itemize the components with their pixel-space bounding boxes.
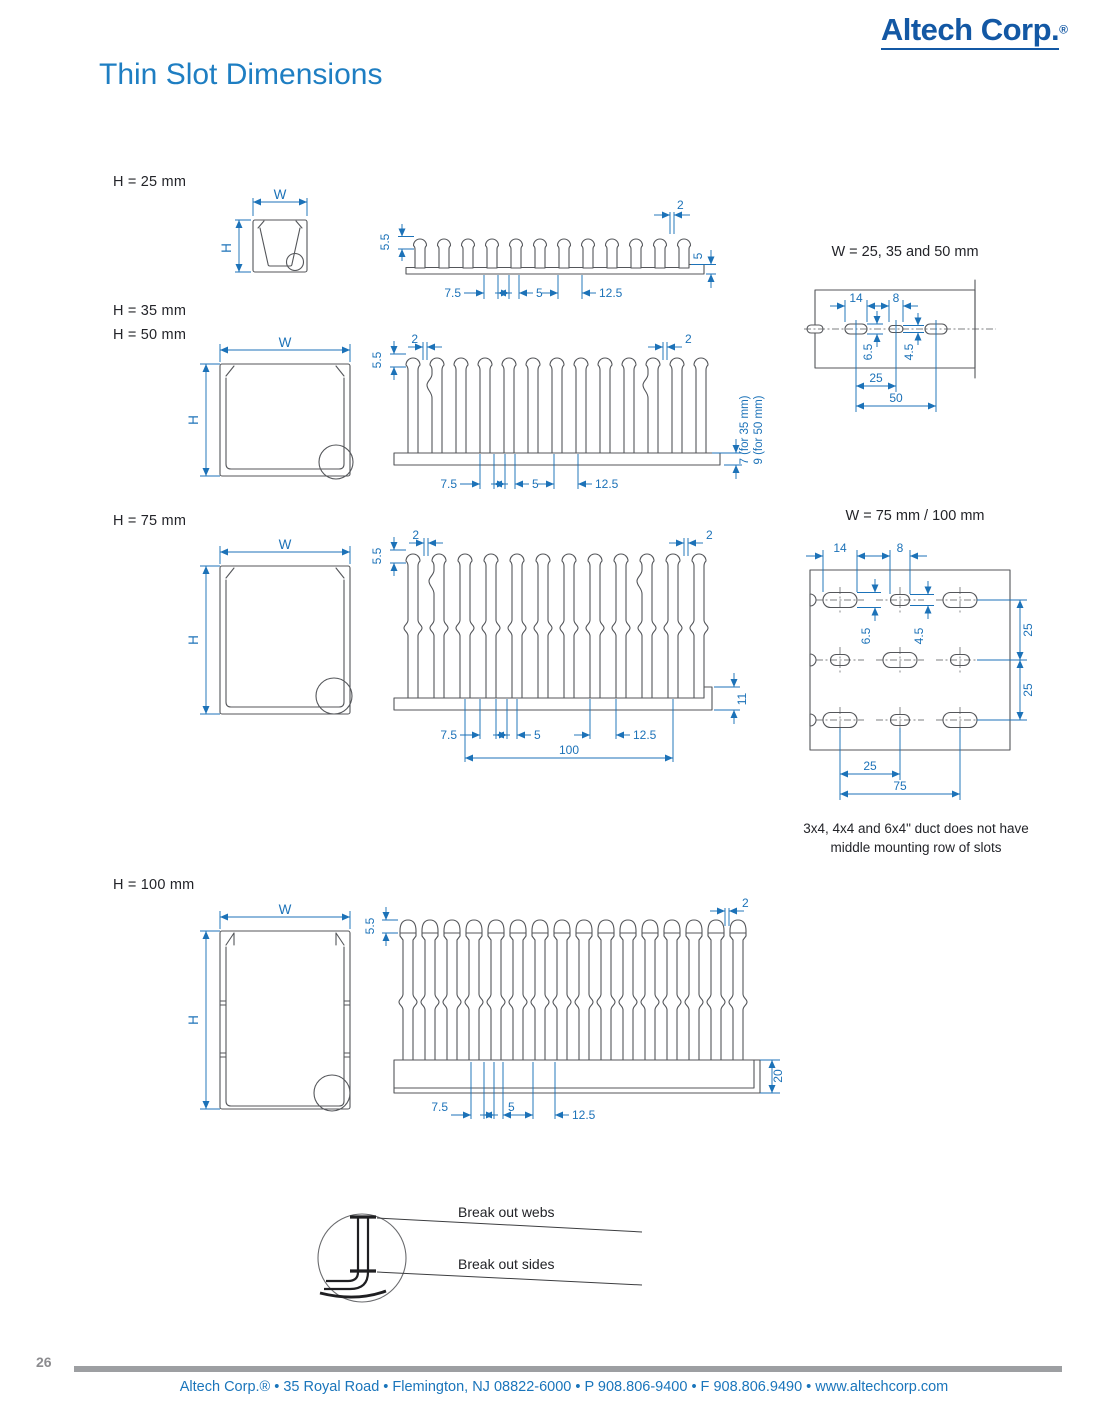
dim-wall: 5	[691, 252, 705, 259]
dim-slot: 5	[508, 1100, 515, 1114]
note-line-1: 3x4, 4x4 and 6x4" duct does not have	[780, 820, 1052, 839]
dim-slot-large: 14	[833, 541, 847, 555]
dim-slot-top: 2	[677, 198, 684, 212]
dim-span-100: 100	[559, 743, 579, 757]
dim-head-height: 5.5	[370, 351, 384, 368]
registered-mark: ®	[1059, 23, 1068, 37]
h35-50-slot-profile-drawing: 5.5 2 2 7 (for 35 mm) 9 (for 50 mm) 7.5 …	[368, 334, 768, 502]
dim-slot-large-h: 6.5	[861, 343, 875, 360]
breakout-sides-label: Break out sides	[458, 1256, 555, 1272]
section-heading-h50: H = 50 mm	[113, 327, 186, 343]
dim-col-25: 25	[863, 759, 877, 773]
dim-foot: 11	[735, 692, 749, 705]
h100-w-label: W	[279, 902, 292, 917]
dim-slot-small: 8	[893, 291, 900, 305]
h100-comb-outline	[394, 920, 760, 1093]
section-heading-h25: H = 25 mm	[113, 174, 186, 190]
h100-cross-section-drawing: W H	[190, 903, 360, 1123]
dim-base-50: 9 (for 50 mm)	[753, 395, 765, 464]
pattern-large-note: 3x4, 4x4 and 6x4" duct does not have mid…	[780, 820, 1052, 858]
h75-cross-section-drawing: W H	[190, 538, 360, 728]
pattern-large-title: W = 75 mm / 100 mm	[790, 508, 1040, 524]
catalog-page: Altech Corp.® Thin Slot Dimensions H = 2…	[0, 0, 1100, 1422]
h75-w-label: W	[279, 537, 292, 552]
h25-h-label: H	[219, 243, 234, 253]
dim-head-height: 5.5	[378, 233, 392, 250]
mounting-pattern-small-drawing: 14 8 6.5 4.5 25 50	[800, 276, 1000, 426]
mounting-pattern-large-drawing: 14 8 6.5 4.5 25 25 25 75	[795, 534, 1040, 806]
dim-span-75: 75	[893, 779, 907, 793]
h35-50-w-label: W	[279, 335, 292, 350]
dim-slot-small: 8	[897, 541, 904, 555]
page-number: 26	[36, 1354, 52, 1370]
h25-slot-profile-drawing: 5.5 2 5 7.5 5 12.5	[372, 196, 722, 308]
dim-web: 7.5	[431, 1100, 448, 1114]
dim-slot-large-h: 6.5	[859, 627, 873, 644]
dim-slot-top-left: 2	[411, 332, 418, 346]
dim-pitch: 12.5	[595, 477, 619, 491]
h25-w-label: W	[274, 187, 287, 202]
altech-logo: Altech Corp.®	[881, 12, 1068, 48]
note-line-2: middle mounting row of slots	[780, 839, 1052, 858]
section-heading-h75: H = 75 mm	[113, 513, 186, 529]
h75-comb-outline	[394, 554, 712, 710]
dim-span-50: 50	[889, 391, 903, 405]
h100-duct-outline	[220, 931, 350, 1111]
dim-slot-small-h: 4.5	[912, 627, 926, 644]
dim-base-35: 7 (for 35 mm)	[739, 395, 751, 464]
dim-web: 7.5	[440, 728, 457, 742]
h75-duct-outline	[220, 566, 352, 714]
pattern-small-title: W = 25, 35 and 50 mm	[790, 244, 1020, 260]
h35-50-h-label: H	[186, 415, 201, 425]
dim-pitch: 12.5	[572, 1108, 596, 1122]
dim-slot-top-right: 2	[685, 332, 692, 346]
dim-slot-large: 14	[849, 291, 863, 305]
section-heading-h100: H = 100 mm	[113, 877, 194, 893]
dim-slot-top-left: 2	[412, 528, 419, 542]
dim-pitch: 12.5	[633, 728, 657, 742]
footer-divider-bar	[74, 1366, 1062, 1372]
h75-h-label: H	[186, 635, 201, 645]
h100-slot-profile-drawing: 5.5 2 20 7.5 5 12.5	[368, 900, 788, 1135]
dim-row-25-b: 25	[1021, 683, 1035, 697]
dim-base-20: 20	[771, 1069, 785, 1083]
h25-duct-outline	[253, 220, 307, 272]
dim-slot: 5	[534, 728, 541, 742]
h25-comb-outline	[406, 239, 704, 274]
logo-text: Altech Corp.	[881, 12, 1059, 50]
h35-50-comb-outline	[394, 358, 720, 465]
dim-row-25-a: 25	[1021, 623, 1035, 637]
dim-web: 7.5	[440, 477, 457, 491]
dim-slot: 5	[532, 477, 539, 491]
section-heading-h35: H = 35 mm	[113, 303, 186, 319]
dim-spacing-25: 25	[869, 371, 883, 385]
dim-slot: 5	[536, 286, 543, 300]
h100-h-label: H	[186, 1015, 201, 1025]
dim-slot-small-h: 4.5	[902, 343, 916, 360]
h35-50-duct-outline	[220, 364, 353, 479]
h75-slot-profile-drawing: 5.5 2 2 11 7.5 5 12.5 100	[368, 530, 778, 770]
h75-profile-dims: 5.5 2 2 11 7.5 5 12.5 100	[370, 528, 749, 762]
breakout-leader-lines	[377, 1218, 642, 1285]
dim-web: 7.5	[444, 286, 461, 300]
breakout-detail-circle	[318, 1214, 406, 1302]
footer-contact-line: Altech Corp.® • 35 Royal Road • Flemingt…	[0, 1379, 1100, 1395]
h35-50-cross-section-drawing: W H	[190, 336, 360, 491]
breakout-webs-label: Break out webs	[458, 1204, 555, 1220]
dim-pitch: 12.5	[599, 286, 623, 300]
page-title: Thin Slot Dimensions	[99, 58, 382, 92]
dim-head-height: 5.5	[363, 917, 377, 934]
h25-cross-section-drawing: W H	[215, 190, 345, 290]
dim-head-height: 5.5	[370, 547, 384, 564]
dim-slot-top: 2	[742, 896, 749, 910]
dim-slot-top-right: 2	[706, 528, 713, 542]
pattern-small-plate	[804, 280, 996, 378]
